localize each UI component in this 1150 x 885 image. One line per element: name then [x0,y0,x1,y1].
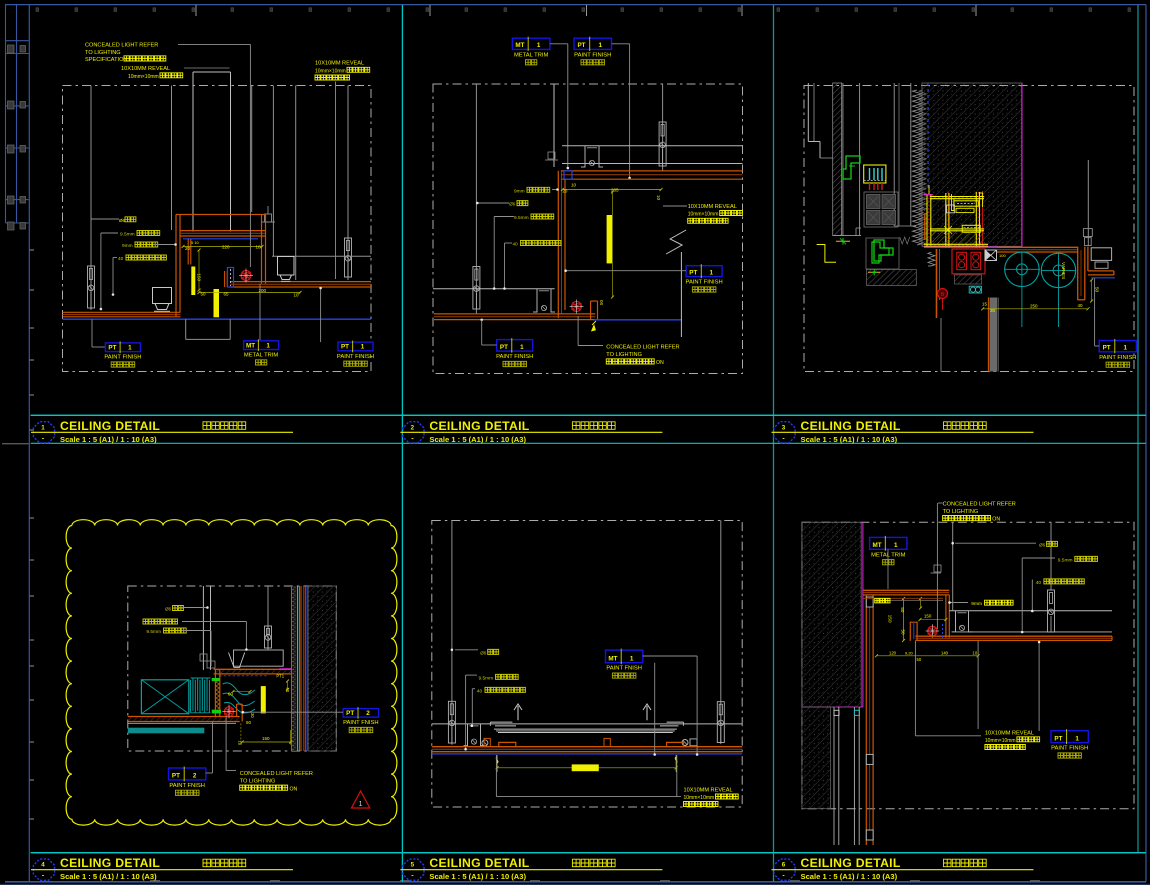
svg-text:Ø6: Ø6 [509,202,516,207]
svg-text:10: 10 [571,183,577,188]
svg-text:CEILING DETAIL: CEILING DETAIL [429,419,529,433]
svg-text:CEILING DETAIL: CEILING DETAIL [801,856,901,870]
svg-text:Scale 1 : 5 (A1) / 1 : 10 (A3): Scale 1 : 5 (A1) / 1 : 10 (A3) [801,872,898,881]
svg-text:9mm: 9mm [122,243,133,249]
svg-text:ON: ON [656,360,664,366]
svg-text:PT: PT [500,344,508,351]
svg-text:CONCEALED LIGHT REFER: CONCEALED LIGHT REFER [85,43,158,49]
svg-text:10X10MM REVEAL: 10X10MM REVEAL [688,204,737,210]
svg-text:METAL TRIM: METAL TRIM [244,353,279,359]
svg-text:CEILING DETAIL: CEILING DETAIL [429,856,529,870]
svg-text:50: 50 [246,720,252,725]
svg-text:220: 220 [222,244,230,249]
svg-text:ON: ON [992,517,1000,523]
svg-text:1: 1 [41,424,45,431]
svg-text:PT: PT [172,773,180,780]
svg-text:10X10MM REVEAL: 10X10MM REVEAL [121,66,170,72]
svg-text:SPECIFICATION: SPECIFICATION [85,57,127,63]
svg-text:1: 1 [894,542,898,549]
svg-text:50: 50 [900,607,905,613]
svg-text:PAINT FINISH: PAINT FINISH [337,354,374,360]
svg-text:ON: ON [290,786,298,792]
svg-text:PAINT FNISH: PAINT FNISH [606,666,642,672]
svg-text:10X10MM REVEAL: 10X10MM REVEAL [315,61,364,67]
svg-text:50: 50 [599,299,604,305]
svg-text:6: 6 [782,862,786,869]
svg-text:TO LIGHTING: TO LIGHTING [240,779,276,785]
svg-text:40: 40 [512,242,518,248]
svg-text:Ø6: Ø6 [165,607,172,612]
svg-text:30: 30 [250,713,255,718]
svg-text:PT: PT [689,269,697,276]
svg-text:10: 10 [238,741,243,746]
svg-text:-: - [411,873,414,880]
svg-text:Scale 1 : 5 (A1) / 1 : 10 (A3): Scale 1 : 5 (A1) / 1 : 10 (A3) [60,872,157,881]
svg-text:10mm×10mm: 10mm×10mm [128,74,159,80]
svg-text:4: 4 [41,862,45,869]
svg-text:3: 3 [782,424,786,431]
svg-text:1: 1 [266,342,270,349]
svg-text:CEILING DETAIL: CEILING DETAIL [60,856,160,870]
svg-text:1: 1 [630,656,634,663]
svg-text:20: 20 [185,246,191,251]
svg-text:1: 1 [361,344,365,351]
svg-text:2: 2 [411,424,415,431]
svg-text:PAINT FNISH: PAINT FNISH [343,720,379,726]
svg-text:Ø6: Ø6 [1039,542,1046,547]
svg-text:-: - [42,873,45,880]
svg-text:10: 10 [294,293,300,298]
svg-text:PT: PT [577,42,585,49]
svg-text:MT: MT [608,656,617,663]
svg-text:5: 5 [411,862,415,869]
svg-text:9mm: 9mm [514,188,525,194]
svg-text:Scale 1 : 5 (A1) / 1 : 10 (A3): Scale 1 : 5 (A1) / 1 : 10 (A3) [429,435,526,444]
svg-text:-: - [782,435,785,442]
svg-text:9.5mm: 9.5mm [514,215,529,221]
svg-text:PT: PT [1103,345,1111,352]
svg-text:Scale 1 : 5 (A1) / 1 : 10 (A3): Scale 1 : 5 (A1) / 1 : 10 (A3) [801,435,898,444]
svg-text:150: 150 [262,736,270,741]
svg-text:1: 1 [1075,735,1079,742]
svg-text:40: 40 [285,688,290,693]
svg-text:50: 50 [201,291,207,296]
svg-text:10mm×10mm: 10mm×10mm [688,212,719,218]
svg-text:100: 100 [999,253,1006,258]
svg-text:9,20: 9,20 [905,651,914,656]
svg-text:20: 20 [562,189,568,194]
svg-text:TO LIGHTING: TO LIGHTING [606,352,642,358]
svg-text:-: - [42,435,45,442]
svg-text:1: 1 [1123,345,1127,352]
svg-text:40: 40 [477,688,483,694]
svg-text:10mm×10mm: 10mm×10mm [985,738,1016,744]
svg-text:10: 10 [256,244,262,249]
svg-text:MT: MT [515,42,524,49]
svg-text:150: 150 [887,615,893,623]
svg-text:TO LIGHTING: TO LIGHTING [85,50,121,56]
svg-text:1: 1 [598,42,602,49]
svg-text:METAL TRIM: METAL TRIM [514,52,549,58]
svg-text:Ø6: Ø6 [480,650,487,655]
svg-text:1: 1 [128,344,132,351]
svg-text:5 10: 5 10 [191,240,200,245]
svg-text:2: 2 [366,710,370,717]
svg-text:MT: MT [873,542,882,549]
svg-text:50: 50 [901,630,906,636]
svg-text:50: 50 [917,657,922,662]
svg-text:PT: PT [341,344,349,351]
svg-text:PT: PT [108,344,116,351]
svg-text:PAINT FNISH: PAINT FNISH [169,783,205,789]
svg-text:50: 50 [1095,287,1100,293]
svg-text:CEILING DETAIL: CEILING DETAIL [801,419,901,433]
svg-text:PAINT FINISH: PAINT FINISH [574,52,611,58]
svg-text:140: 140 [941,651,949,656]
svg-text:9.5mm: 9.5mm [479,675,494,681]
svg-text:15: 15 [982,302,988,307]
svg-text:10: 10 [973,651,978,656]
svg-text:CEILING DETAIL: CEILING DETAIL [60,419,160,433]
svg-text:CONCEALED LIGHT REFER: CONCEALED LIGHT REFER [943,501,1016,507]
svg-text:150: 150 [924,613,932,618]
svg-text:PAINT FINISH: PAINT FINISH [104,355,141,361]
svg-text:MT: MT [246,342,255,349]
svg-text:CONCEALED LIGHT REFER: CONCEALED LIGHT REFER [606,345,679,351]
svg-text:PT: PT [1054,735,1062,742]
svg-text:PT1: PT1 [276,674,284,679]
svg-text:40: 40 [118,256,124,262]
svg-text:PT: PT [346,710,354,717]
svg-text:9.5mm: 9.5mm [120,232,135,238]
svg-text:9mm: 9mm [971,601,982,607]
svg-text:10mm×10mm: 10mm×10mm [315,68,346,74]
svg-text:10mm×10mm: 10mm×10mm [684,795,715,801]
svg-text:65: 65 [224,291,230,296]
svg-text:1: 1 [710,269,714,276]
svg-text:250: 250 [1030,304,1038,309]
svg-text:9.5mm: 9.5mm [146,629,161,635]
svg-text:1: 1 [359,801,363,808]
svg-text:CONCEALED LIGHT REFER: CONCEALED LIGHT REFER [240,771,313,777]
svg-text:10: 10 [656,195,661,201]
svg-text:PAINT FINISH: PAINT FINISH [1051,746,1088,752]
svg-text:1: 1 [537,42,541,49]
svg-text:40: 40 [1036,580,1042,586]
svg-text:10X10MM REVEAL: 10X10MM REVEAL [684,788,733,794]
svg-text:TO LIGHTING: TO LIGHTING [943,509,979,515]
svg-text:1: 1 [520,344,524,351]
svg-text:30: 30 [990,308,996,313]
svg-text:VARIES: VARIES [1060,262,1066,279]
svg-text:PAINT FINISH: PAINT FINISH [686,280,723,286]
svg-text:10X10MM REVEAL: 10X10MM REVEAL [985,730,1034,736]
svg-text:Scale 1 : 5 (A1) / 1 : 10 (A3): Scale 1 : 5 (A1) / 1 : 10 (A3) [60,435,157,444]
svg-text:Scale 1 : 5 (A1) / 1 : 10 (A3): Scale 1 : 5 (A1) / 1 : 10 (A3) [429,872,526,881]
svg-text:PAINT FINISH: PAINT FINISH [1099,355,1136,361]
svg-text:-: - [782,873,785,880]
svg-text:40: 40 [1078,303,1084,308]
svg-text:-: - [411,435,414,442]
svg-text:9.5mm: 9.5mm [1058,557,1073,563]
svg-text:PAINT FINISH: PAINT FINISH [496,354,533,360]
svg-text:120: 120 [889,651,897,656]
svg-text:2: 2 [193,773,197,780]
